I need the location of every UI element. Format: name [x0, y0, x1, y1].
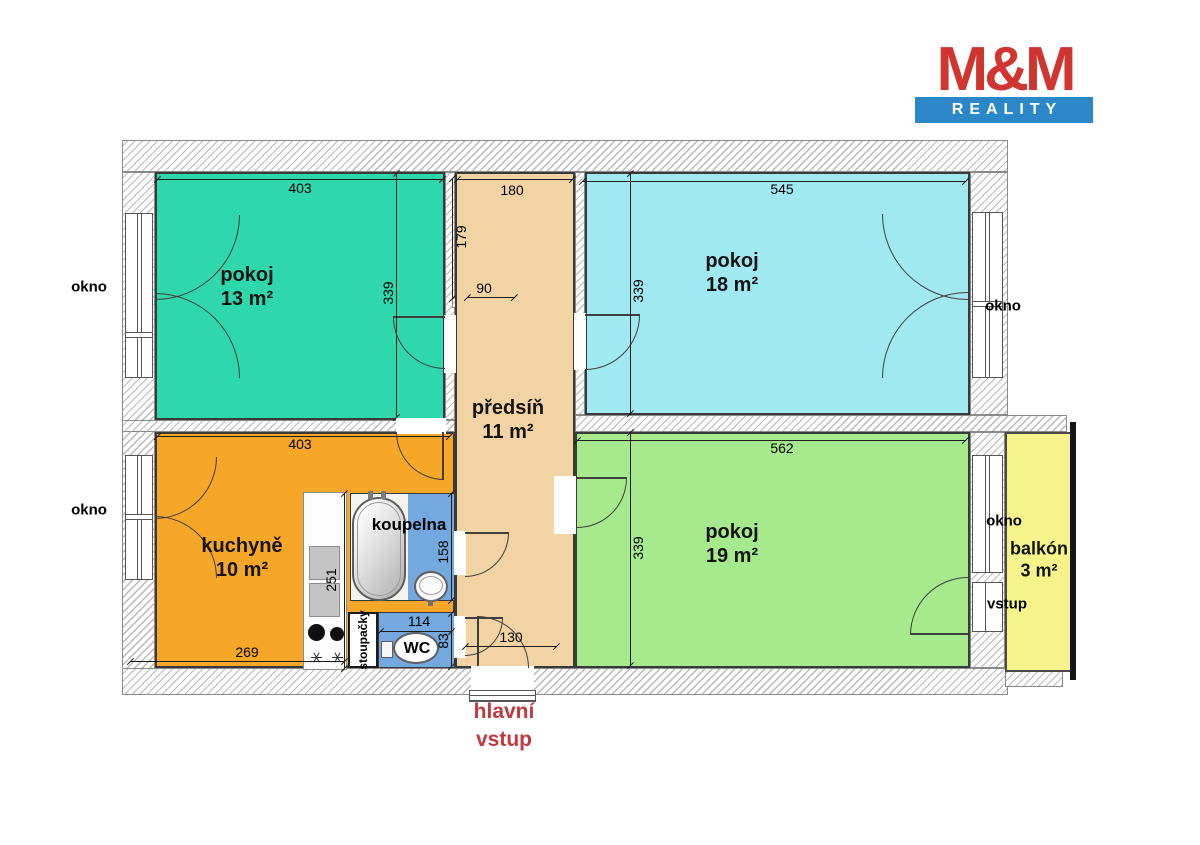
room-name: předsíň: [472, 396, 544, 420]
window-pokoj18: [972, 212, 1003, 378]
label-predsin: předsíň 11 m²: [472, 396, 544, 444]
room-name: balkón: [1010, 538, 1068, 560]
dim-line-339-r13: [396, 174, 397, 417]
room-name: pokoj: [705, 249, 758, 273]
stove-ring-icon: [311, 657, 322, 658]
floor-plan: 403 180 545 339 339 339 179 90 403 562 2…: [0, 0, 1200, 845]
dim-114: 114: [408, 613, 430, 629]
label-pokoj-13: pokoj 13 m²: [220, 263, 273, 311]
dim-line-130: [465, 646, 557, 647]
door-leaf-pokoj13: [393, 316, 445, 318]
dim-line-251: [344, 494, 345, 668]
dim-251: 251: [323, 568, 339, 591]
room-pokoj-13: [155, 172, 445, 420]
dim-269: 269: [235, 644, 258, 660]
door-gap-pokoj13: [444, 315, 456, 373]
wall-mid-right: [575, 415, 1067, 432]
dim-179: 179: [453, 225, 469, 248]
room-area: 18 m²: [705, 273, 758, 297]
label-pokoj-19: pokoj 19 m²: [705, 520, 758, 568]
dim-158: 158: [435, 540, 451, 563]
door-gap-pokoj19: [554, 476, 576, 534]
dim-403-kitchen: 403: [288, 436, 311, 452]
door-leaf-entry: [477, 616, 479, 666]
wall-top: [122, 140, 1008, 172]
door-leaf-koupelna: [465, 532, 509, 534]
dim-line-180: [457, 179, 573, 180]
room-name: pokoj: [220, 263, 273, 287]
label-okno-balkon: okno: [986, 513, 1022, 530]
bathtub-tap-icon: [381, 491, 386, 499]
dim-339-r13: 339: [380, 281, 396, 304]
label-balkon: balkón 3 m²: [1010, 538, 1068, 581]
room-area: 11 m²: [472, 420, 544, 444]
door-leaf-pokoj19: [577, 477, 627, 479]
dim-130: 130: [499, 629, 522, 645]
room-name: pokoj: [705, 520, 758, 544]
dim-180: 180: [500, 182, 523, 198]
wall-bottom: [122, 668, 1008, 695]
entrance-line-2: vstup: [474, 726, 535, 754]
window-pokoj13: [125, 213, 153, 378]
dim-90: 90: [476, 280, 492, 296]
room-name: kuchyně: [201, 534, 282, 558]
label-koupelna: koupelna: [372, 515, 447, 535]
logo-reality-bar: REALITY: [915, 97, 1093, 123]
label-kuchyne: kuchyně 10 m²: [201, 534, 282, 582]
room-area: 10 m²: [201, 558, 282, 582]
stove-ring-icon: [332, 657, 343, 658]
room-area: 19 m²: [705, 544, 758, 568]
door-leaf-pokoj18: [585, 314, 640, 316]
dim-339-r18: 339: [630, 279, 646, 302]
label-wc: WC: [404, 640, 431, 658]
dim-545: 545: [770, 181, 793, 197]
dim-83: 83: [435, 633, 451, 649]
label-okno-left-2: okno: [71, 502, 107, 519]
door-leaf-kuchyne: [442, 432, 444, 480]
dim-line-83: [451, 614, 452, 666]
dim-line-269: [130, 661, 345, 662]
room-area: 13 m²: [220, 287, 273, 311]
balcony-railing: [1070, 422, 1076, 680]
label-pokoj-18: pokoj 18 m²: [705, 249, 758, 297]
dim-339-r19: 339: [630, 536, 646, 559]
entrance-line-1: hlavní: [474, 698, 535, 726]
label-stoupacky: stoupačky: [356, 610, 370, 669]
washbasin-drain: [428, 600, 433, 606]
label-hlavni-vstup: hlavní vstup: [474, 698, 535, 755]
dim-562: 562: [770, 440, 793, 456]
logo-tagline: REALITY: [946, 101, 1062, 119]
label-okno-right: okno: [985, 298, 1021, 315]
dim-line-158: [451, 494, 452, 600]
washbasin-inner: [419, 576, 443, 595]
label-vstup-balkon: vstup: [987, 596, 1027, 613]
window-kuchyne: [125, 455, 153, 580]
door-leaf-balkon: [910, 633, 968, 635]
dim-403-top: 403: [288, 180, 311, 196]
logo-mm: M&M: [912, 34, 1097, 105]
room-area: 3 m²: [1010, 560, 1068, 582]
bathtub-tap-icon: [368, 491, 373, 499]
label-okno-left-1: okno: [71, 279, 107, 296]
stove-burner-icon: [308, 624, 325, 641]
wall-hall-room18: [575, 172, 585, 415]
toilet-tank: [381, 641, 393, 658]
dim-line-90: [467, 297, 515, 298]
stove-burner-icon: [330, 627, 344, 641]
